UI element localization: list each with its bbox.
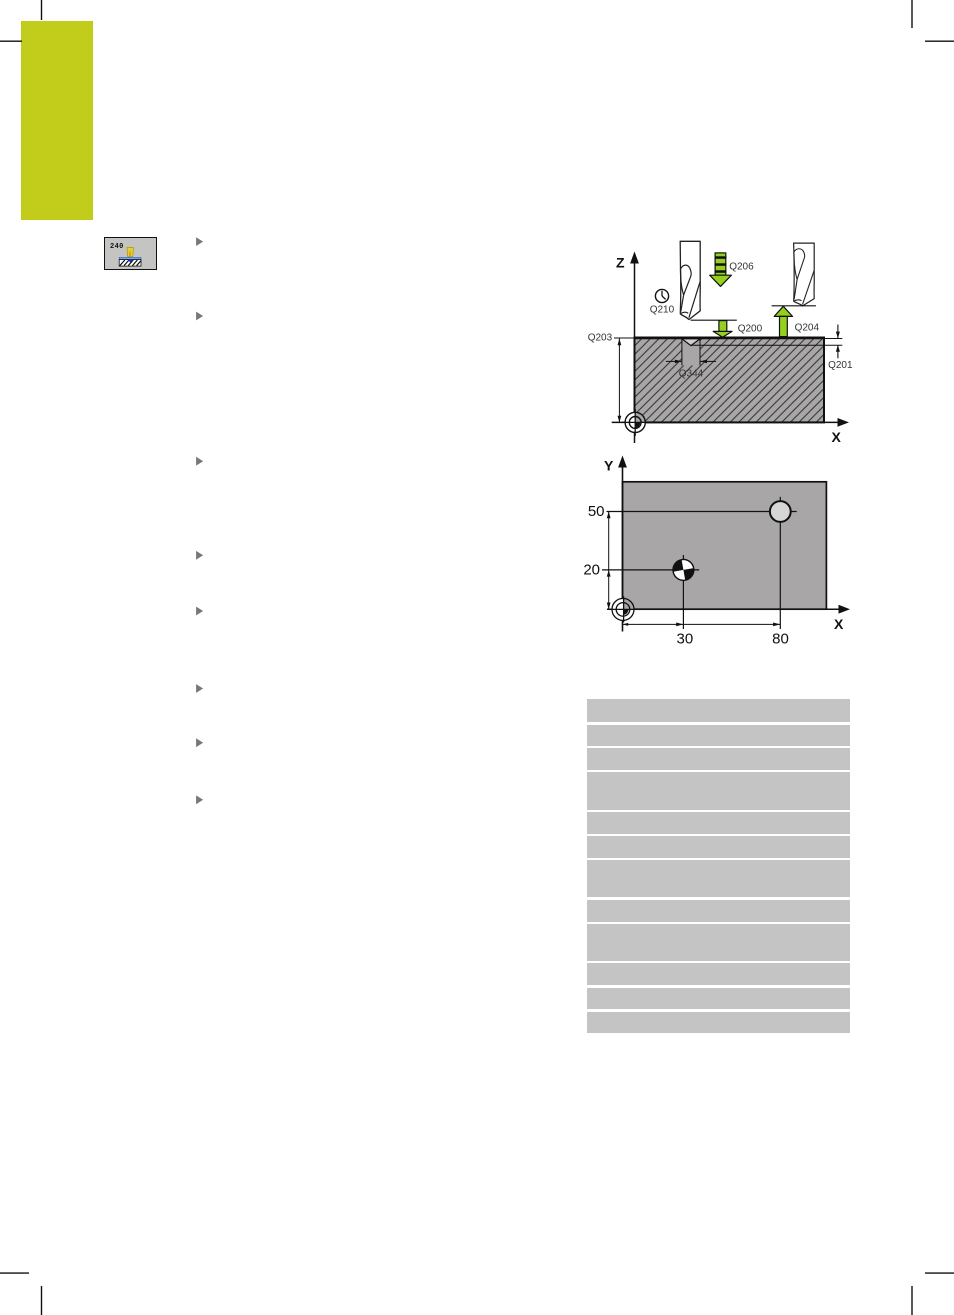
- svg-text:Q210: Q210: [650, 304, 675, 315]
- svg-text:Q344: Q344: [679, 369, 704, 380]
- svg-text:X: X: [834, 616, 844, 632]
- svg-text:30: 30: [677, 631, 694, 648]
- svg-text:Y: Y: [604, 458, 614, 474]
- svg-text:50: 50: [588, 503, 605, 520]
- svg-text:X: X: [832, 429, 842, 445]
- svg-text:Q201: Q201: [828, 360, 853, 371]
- svg-text:20: 20: [583, 562, 600, 579]
- svg-text:Z: Z: [616, 255, 625, 271]
- svg-text:Q200: Q200: [738, 324, 763, 335]
- svg-text:Q204: Q204: [795, 322, 820, 333]
- svg-text:Q206: Q206: [729, 261, 754, 272]
- svg-text:80: 80: [772, 631, 789, 648]
- svg-text:Q203: Q203: [588, 333, 613, 344]
